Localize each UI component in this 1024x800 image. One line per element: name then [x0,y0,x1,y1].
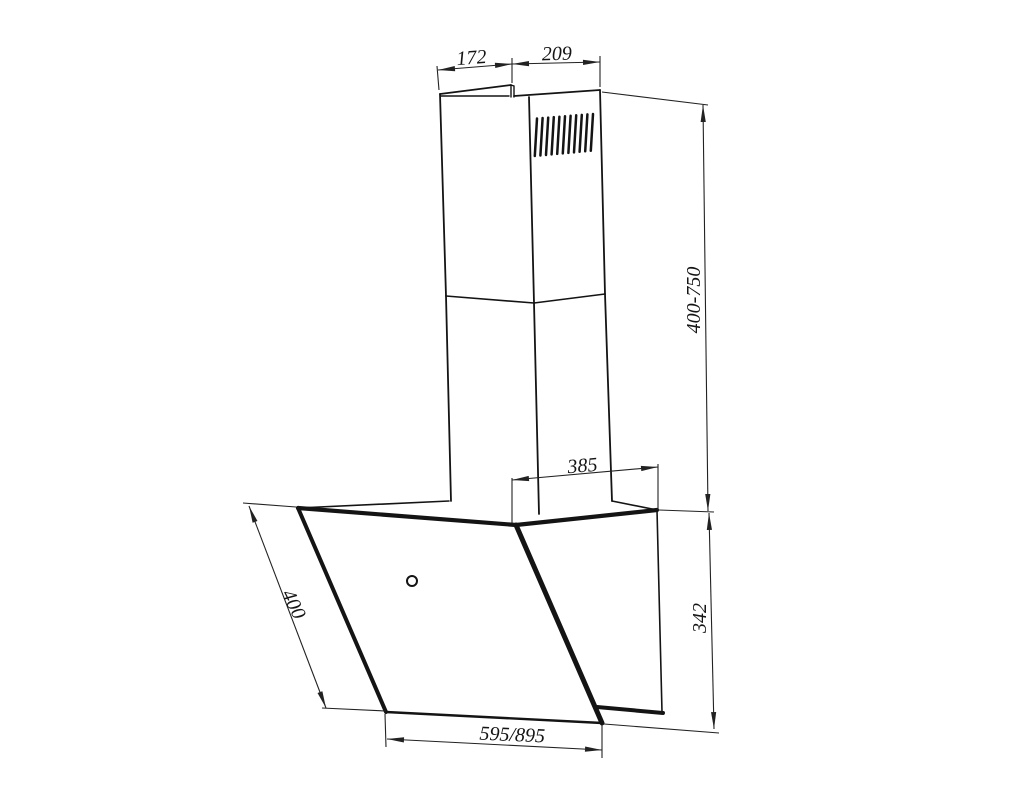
dim-label-chimney-height-range: 400-750 [683,267,705,334]
chimney-front-corner-edge [529,97,534,303]
chimney-telescopic-joint [446,294,605,303]
vent-slat [552,117,554,154]
drawing-canvas: 172 209 400-750 385 342 400 595/895 [0,0,1024,800]
dim-label-chimney-right-width: 209 [542,43,573,66]
glass-panel-right-edge [516,525,602,723]
hood-top-back-edge-left [298,501,449,508]
vent-slat [540,118,542,156]
dimension-annotations: 172 209 400-750 385 342 400 595/895 [243,43,719,758]
dim-label-top-depth: 385 [566,454,599,479]
extension-lines [243,56,719,758]
control-knob [407,576,417,586]
vent-slat [535,119,537,157]
glass-panel-left-edge [298,508,386,712]
glass-panel-bottom-edge [386,712,602,723]
vent-slat [557,117,559,154]
hood-top-front-edge [298,508,657,525]
chimney-top-right-edge [514,90,600,96]
vent-grille [535,114,593,156]
vent-slat [585,114,587,151]
vent-slat [546,118,548,155]
vent-slat [568,116,570,153]
vent-slat [574,115,576,152]
vent-slat [591,114,593,151]
chimney-lower-section [446,294,612,514]
chimney-top-left-edge [440,85,511,94]
dim-label-body-width: 595/895 [479,723,545,748]
chimney-lower-right-edge [605,294,612,501]
chimney-lower-left-edge [446,296,451,501]
vent-slat [563,116,565,153]
vent-slat [580,115,582,152]
hood-body [298,501,663,723]
dimension-labels: 172 209 400-750 385 342 400 595/895 [277,43,711,748]
chimney-left-edge [440,94,446,296]
cooker-hood-technical-drawing: 172 209 400-750 385 342 400 595/895 [0,0,1024,800]
dimension-lines [249,62,714,750]
chimney-upper-section [440,85,605,303]
dim-label-body-height: 342 [689,603,711,634]
chimney-top-fold-notch [511,85,514,97]
chimney-lower-front-edge [534,303,539,514]
side-panel-bottom-edge [597,707,663,713]
side-panel-back-edge [657,510,662,712]
dim-label-chimney-left-width: 172 [456,46,488,70]
chimney-right-edge [600,90,605,294]
